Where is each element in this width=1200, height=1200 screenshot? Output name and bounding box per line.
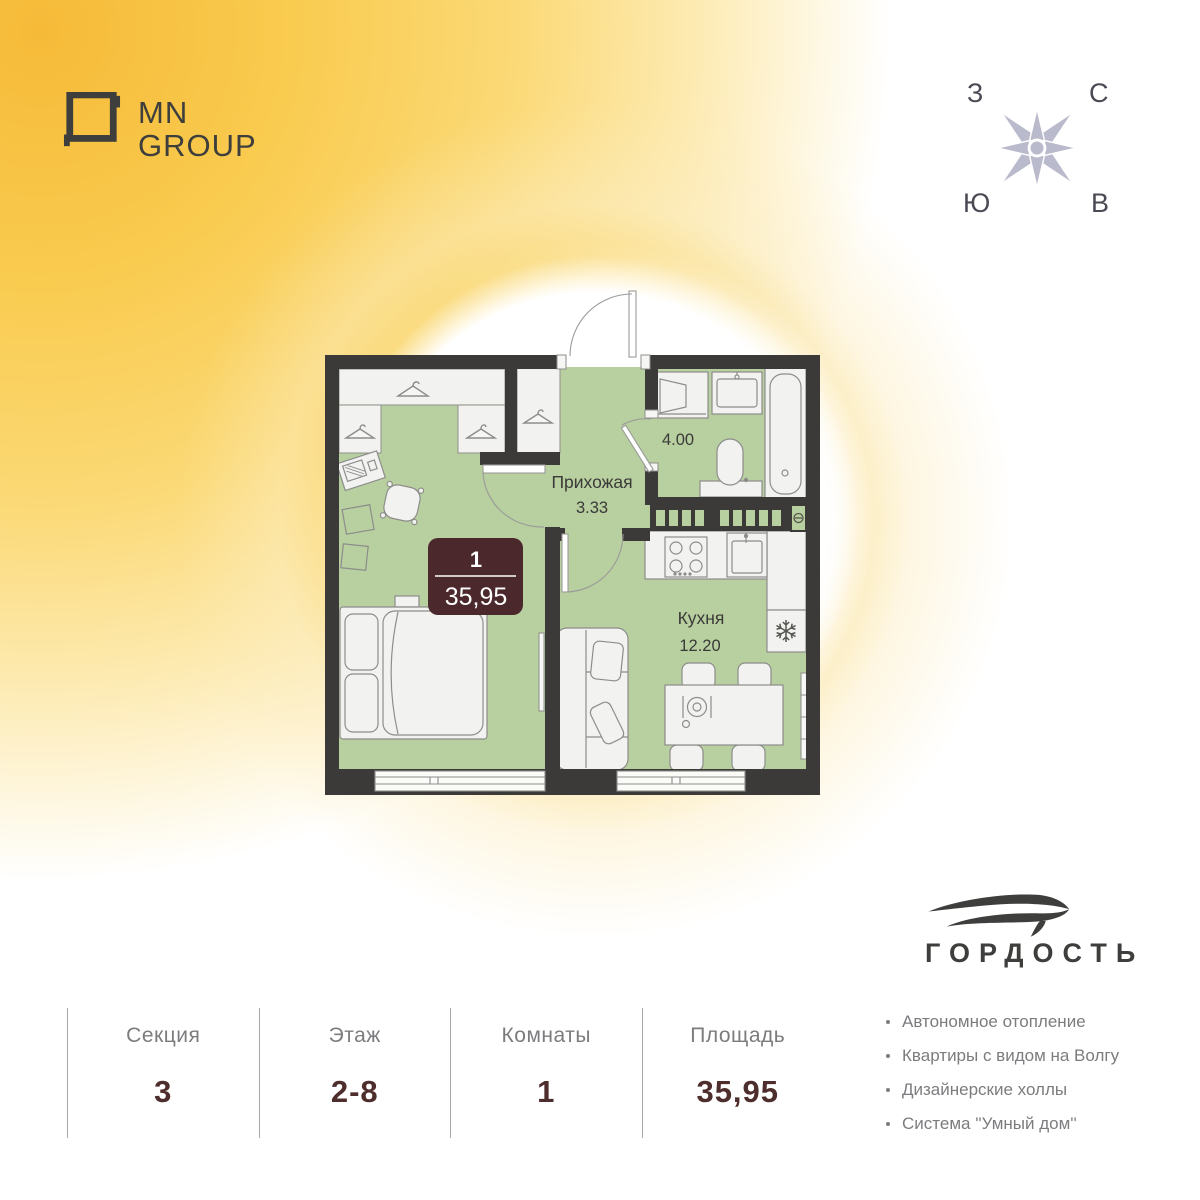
hallway-wardrobe	[517, 367, 560, 453]
bullet-dot-icon	[886, 1088, 890, 1092]
wall	[645, 355, 820, 369]
badge-rooms-count: 1	[470, 547, 482, 572]
wall	[806, 355, 820, 795]
mn-group-logo-icon	[63, 92, 121, 150]
kitchen-counter-side	[767, 531, 806, 610]
door-leaf	[483, 465, 545, 473]
kitchen-area: 12.20	[679, 637, 720, 655]
features-list: Автономное отопление Квартиры с видом на…	[886, 1012, 1186, 1148]
kitchen-sink	[727, 533, 767, 577]
chair	[670, 745, 703, 771]
bathroom-sink	[712, 372, 762, 414]
bullet-dot-icon	[886, 1020, 890, 1024]
chair	[732, 745, 765, 771]
summary-label: Комнаты	[502, 1024, 591, 1048]
summary-value: 2-8	[331, 1074, 379, 1110]
bathtub	[765, 367, 806, 501]
logo-line-2: GROUP	[138, 129, 257, 162]
door-leaf	[562, 534, 568, 592]
feature-text: Квартиры с видом на Волгу	[902, 1046, 1119, 1065]
washing-machine	[652, 372, 708, 418]
nightstand	[395, 596, 419, 607]
feature-text: Система ''Умный дом''	[902, 1114, 1077, 1133]
unit-badge: 1 35,95	[428, 538, 523, 615]
compass-north: С	[1089, 78, 1109, 109]
summary-value: 35,95	[696, 1074, 779, 1110]
pillow	[345, 674, 378, 732]
wall	[545, 527, 560, 769]
summary-col-area: Площадь 35,95	[642, 1008, 834, 1138]
summary-col-section: Секция 3	[67, 1008, 259, 1138]
wall	[505, 367, 517, 453]
floor-plan: 1 35,95 Прихожая 3.33 4.00 Кухня 12.20	[320, 275, 825, 805]
summary-col-floor: Этаж 2-8	[259, 1008, 451, 1138]
compass-south: Ю	[963, 188, 990, 219]
summary-col-rooms: Комнаты 1	[450, 1008, 642, 1138]
door-leaf	[629, 291, 636, 357]
list-item: Автономное отопление	[886, 1012, 1186, 1031]
summary-table: Секция 3 Этаж 2-8 Комнаты 1 Площадь 35,9…	[67, 1008, 833, 1138]
stove	[665, 537, 707, 577]
wall	[325, 355, 563, 369]
wall	[480, 452, 560, 465]
wall	[645, 497, 806, 505]
kitchen-window	[617, 771, 745, 791]
bullet-dot-icon	[886, 1054, 890, 1058]
hallway-area: 3.33	[576, 499, 608, 517]
bed	[340, 596, 487, 739]
badge-area: 35,95	[445, 583, 508, 611]
feature-text: Дизайнерские холлы	[902, 1080, 1067, 1099]
wall	[622, 528, 650, 541]
sofa	[556, 628, 628, 770]
developer-name: ГОРДОСТЬ	[925, 938, 1165, 969]
hallway-label: Прихожая	[551, 472, 632, 492]
compass-east: В	[1091, 188, 1109, 219]
kitchen-label: Кухня	[678, 608, 725, 628]
bathroom-area: 4.00	[662, 431, 694, 449]
wall	[325, 355, 339, 795]
page: MN GROUP З С Ю В	[0, 0, 1200, 1200]
blanket	[383, 611, 483, 735]
logo-line-1: MN	[138, 96, 257, 129]
summary-value: 3	[154, 1074, 172, 1110]
summary-label: Площадь	[690, 1024, 785, 1048]
door-swing-arc	[570, 294, 632, 356]
compass-west: З	[967, 78, 983, 109]
ventilation-shaft	[650, 505, 806, 531]
entrance-door	[557, 291, 650, 369]
mn-group-logo-text: MN GROUP	[138, 96, 257, 162]
bullet-dot-icon	[886, 1122, 890, 1126]
list-item: Система ''Умный дом''	[886, 1114, 1186, 1133]
compass: З С Ю В	[955, 72, 1125, 232]
feature-text: Автономное отопление	[902, 1012, 1086, 1031]
summary-value: 1	[537, 1074, 555, 1110]
tv	[539, 633, 544, 711]
list-item: Дизайнерские холлы	[886, 1080, 1186, 1099]
list-item: Квартиры с видом на Волгу	[886, 1046, 1186, 1065]
summary-label: Секция	[126, 1024, 200, 1048]
pillow	[345, 614, 378, 670]
gordost-bird-icon	[922, 890, 1077, 940]
bedroom-window	[375, 771, 545, 791]
summary-label: Этаж	[329, 1024, 381, 1048]
compass-rose-icon	[979, 90, 1095, 206]
